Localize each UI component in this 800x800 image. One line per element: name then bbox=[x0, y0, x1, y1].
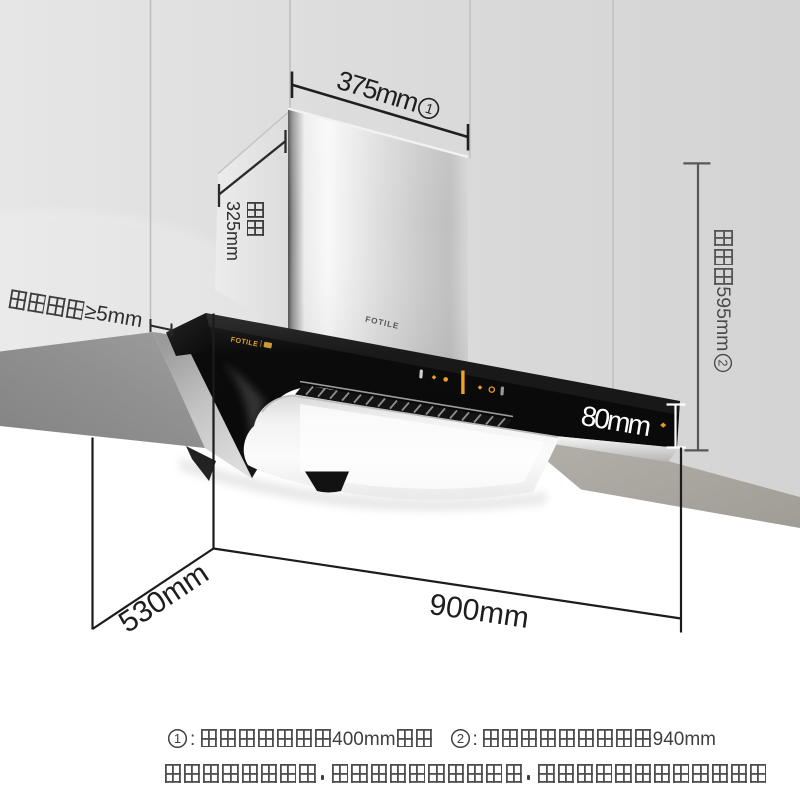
svg-text:2: 2 bbox=[456, 731, 463, 746]
svg-text:1: 1 bbox=[174, 731, 181, 746]
svg-text:2: 2 bbox=[716, 360, 730, 367]
svg-text:1: 1 bbox=[423, 100, 435, 118]
